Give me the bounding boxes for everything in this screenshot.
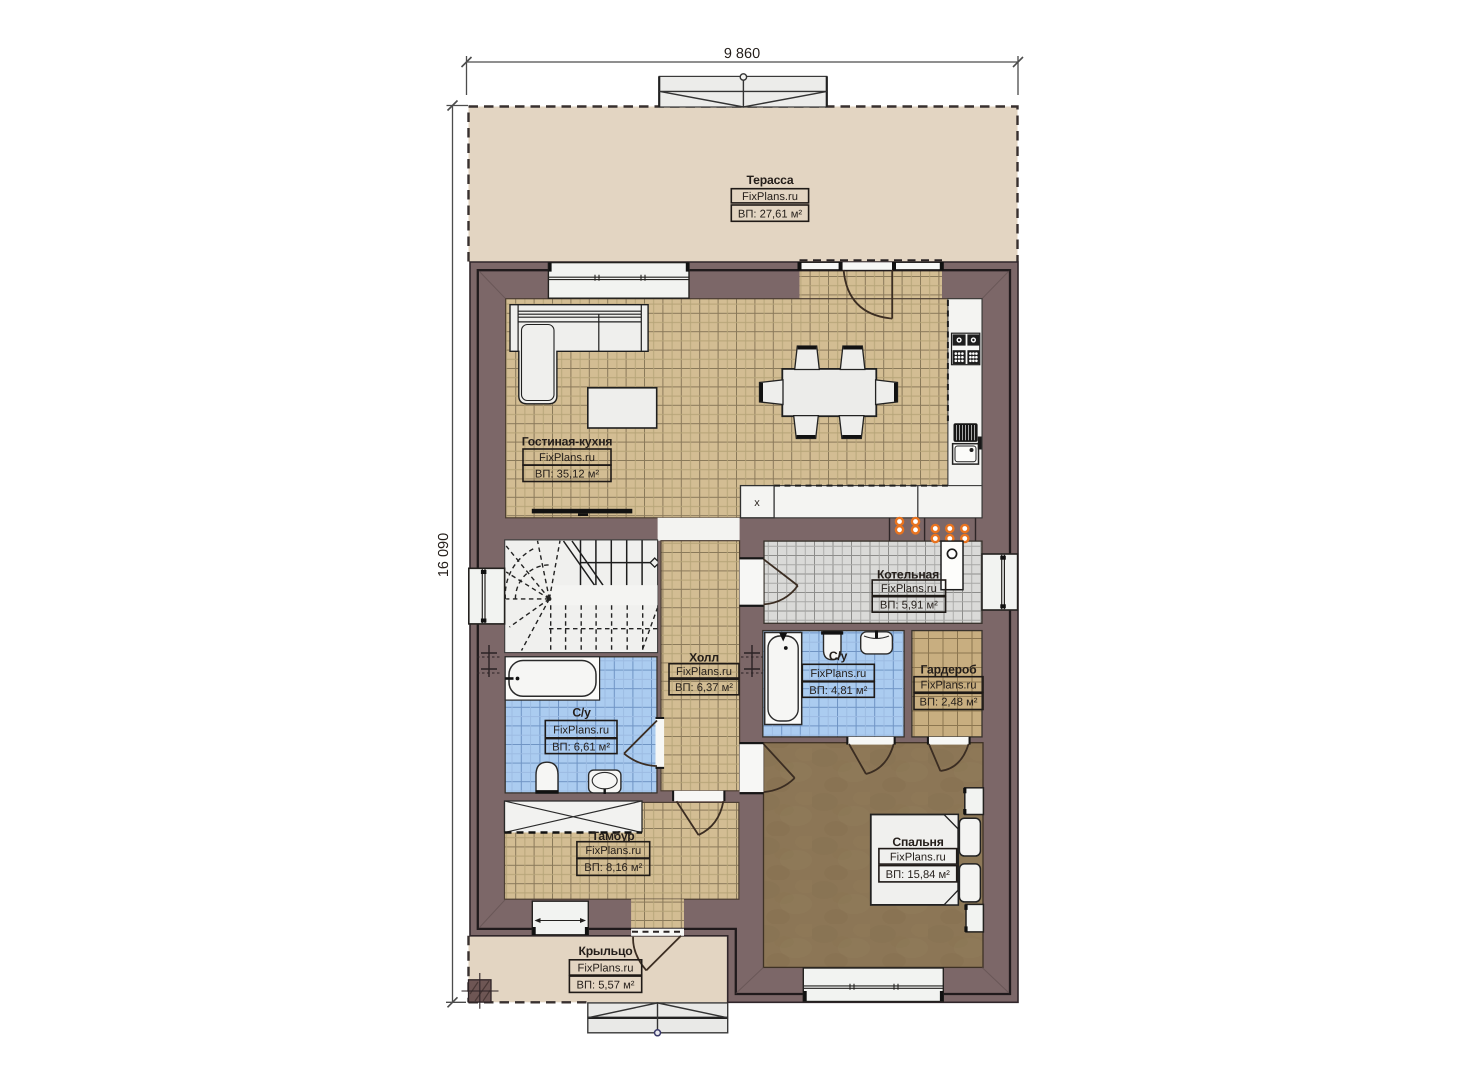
svg-text:FixPlans.ru: FixPlans.ru xyxy=(676,666,732,678)
svg-text:FixPlans.ru: FixPlans.ru xyxy=(539,452,595,464)
svg-text:ВП: 2,48 м²: ВП: 2,48 м² xyxy=(919,697,977,709)
svg-text:ВП: 15,84 м²: ВП: 15,84 м² xyxy=(886,869,951,881)
svg-text:ВП: 35,12 м²: ВП: 35,12 м² xyxy=(535,469,600,481)
svg-text:Спальня: Спальня xyxy=(892,835,943,849)
svg-text:FixPlans.ru: FixPlans.ru xyxy=(742,191,798,203)
svg-text:ВП: 8,16 м²: ВП: 8,16 м² xyxy=(584,862,642,874)
svg-text:FixPlans.ru: FixPlans.ru xyxy=(890,852,946,864)
svg-text:ВП: 5,91 м²: ВП: 5,91 м² xyxy=(880,600,938,612)
svg-text:Тамбур: Тамбур xyxy=(591,829,634,843)
svg-text:16 090: 16 090 xyxy=(436,533,452,577)
svg-text:Холл: Холл xyxy=(689,651,719,665)
svg-text:FixPlans.ru: FixPlans.ru xyxy=(553,724,609,736)
svg-text:FixPlans.ru: FixPlans.ru xyxy=(585,845,641,857)
svg-text:Крыльцо: Крыльцо xyxy=(578,944,632,958)
svg-text:ВП: 6,37 м²: ВП: 6,37 м² xyxy=(675,682,733,694)
svg-text:Гостиная-кухня: Гостиная-кухня xyxy=(522,435,613,449)
svg-text:Терасса: Терасса xyxy=(747,173,794,187)
svg-text:Гардероб: Гардероб xyxy=(921,663,978,677)
svg-text:FixPlans.ru: FixPlans.ru xyxy=(578,963,634,975)
svg-text:ВП: 27,61 м²: ВП: 27,61 м² xyxy=(738,208,803,220)
svg-text:ВП: 4,81 м²: ВП: 4,81 м² xyxy=(809,685,867,697)
svg-text:х: х xyxy=(754,497,760,509)
svg-text:С/у: С/у xyxy=(829,649,848,663)
svg-text:С/у: С/у xyxy=(572,706,591,720)
svg-text:FixPlans.ru: FixPlans.ru xyxy=(810,668,866,680)
svg-text:ВП: 6,61 м²: ВП: 6,61 м² xyxy=(552,741,610,753)
svg-text:FixPlans.ru: FixPlans.ru xyxy=(921,680,977,692)
svg-text:ВП: 5,57 м²: ВП: 5,57 м² xyxy=(576,980,634,992)
svg-text:9 860: 9 860 xyxy=(724,46,760,62)
svg-text:FixPlans.ru: FixPlans.ru xyxy=(881,583,937,595)
